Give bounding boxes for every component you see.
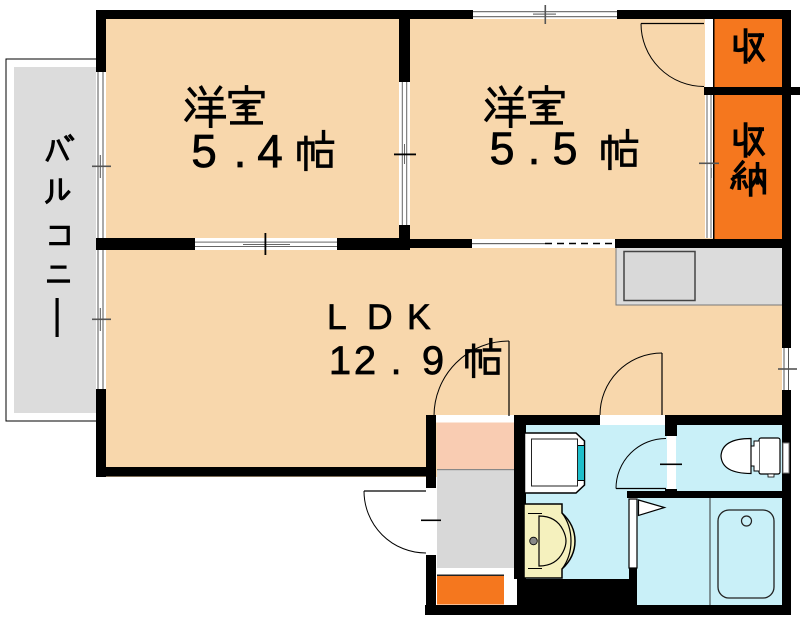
svg-text:9: 9: [422, 339, 444, 383]
svg-text:2: 2: [354, 339, 376, 383]
svg-text:1: 1: [329, 339, 351, 383]
svg-text:.: .: [390, 339, 401, 383]
svg-text:5: 5: [191, 125, 217, 177]
svg-text:.: .: [528, 123, 541, 174]
svg-text:5: 5: [489, 123, 514, 174]
svg-text:L: L: [327, 297, 347, 337]
svg-text:4: 4: [257, 125, 283, 177]
svg-text:.: .: [234, 125, 247, 177]
svg-text:D: D: [367, 297, 393, 337]
svg-text:K: K: [407, 297, 431, 337]
svg-text:5: 5: [552, 123, 577, 174]
